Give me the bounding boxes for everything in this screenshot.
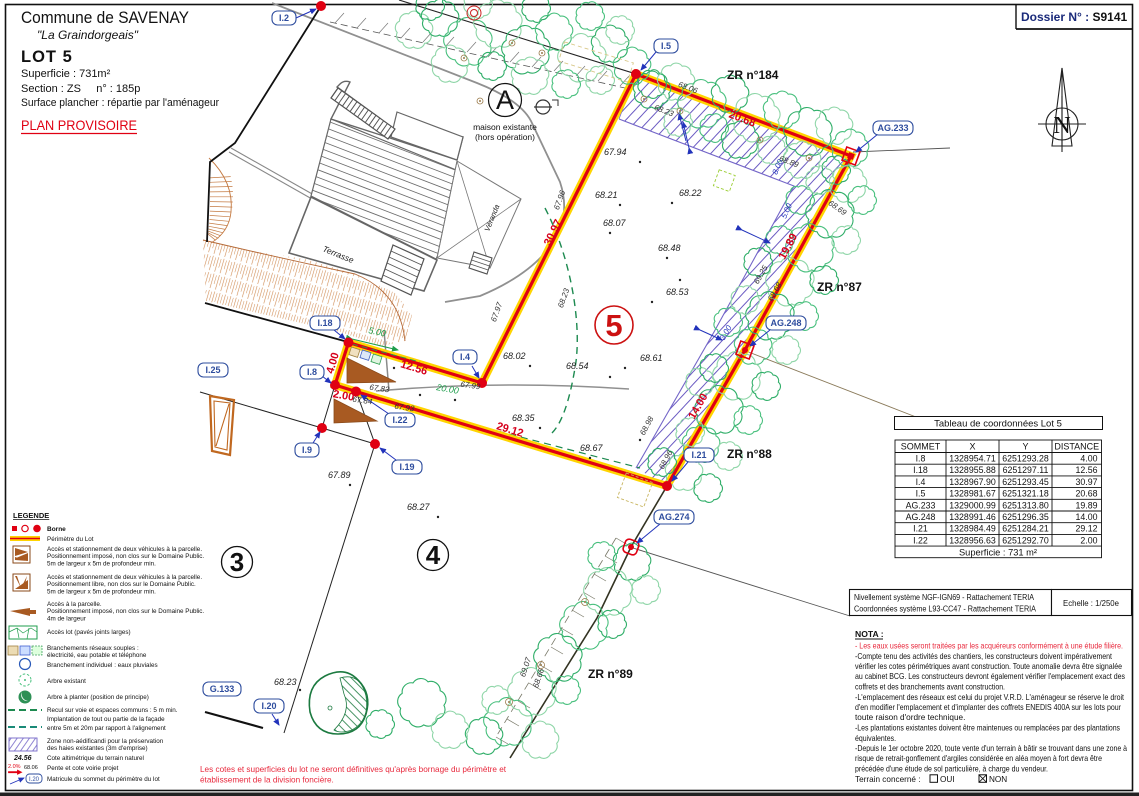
svg-text:6251313.80: 6251313.80 bbox=[1002, 500, 1049, 510]
svg-text:-Les plantations existantes do: -Les plantations existantes doivent être… bbox=[855, 724, 1120, 733]
svg-text:6251293.45: 6251293.45 bbox=[1002, 477, 1049, 487]
svg-text:(hors opération): (hors opération) bbox=[475, 132, 535, 142]
svg-text:6251297.11: 6251297.11 bbox=[1003, 465, 1049, 475]
svg-text:Coordonnées système L93-CC47: Coordonnées système L93-CC47 - Rattachem… bbox=[854, 605, 1037, 614]
svg-text:toute raison d'ordre technique: toute raison d'ordre technique. bbox=[855, 713, 965, 722]
svg-text:d'en modifier l'emplacement et: d'en modifier l'emplacement et d'implant… bbox=[855, 703, 1121, 712]
svg-text:Arbre existant: Arbre existant bbox=[47, 678, 86, 685]
svg-text:AG.248: AG.248 bbox=[906, 512, 936, 522]
svg-text:risque de retrait-gonflement d: risque de retrait-gonflement d'argiles c… bbox=[855, 754, 1102, 763]
svg-text:maison existante: maison existante bbox=[473, 122, 537, 132]
svg-text:NON: NON bbox=[989, 775, 1007, 784]
svg-text:N: N bbox=[1053, 113, 1070, 139]
svg-text:68.02: 68.02 bbox=[503, 351, 526, 361]
svg-text:I.25: I.25 bbox=[205, 365, 220, 375]
svg-text:au cabinet BCG. Les constructe: au cabinet BCG. Les constructeurs devron… bbox=[855, 672, 1125, 681]
svg-text:68.21: 68.21 bbox=[595, 190, 618, 200]
svg-text:Y: Y bbox=[1022, 442, 1028, 452]
svg-text:1328967.90: 1328967.90 bbox=[949, 477, 996, 487]
svg-text:coffrets et des branchements a: coffrets et des branchements avant const… bbox=[855, 683, 1005, 692]
svg-text:NOTA :: NOTA : bbox=[855, 629, 884, 639]
svg-text:Matricule du sommet du périmèt: Matricule du sommet du périmètre du lot bbox=[47, 776, 160, 783]
svg-text:1328955.88: 1328955.88 bbox=[949, 465, 996, 475]
svg-text:I.4: I.4 bbox=[460, 352, 470, 362]
svg-text:Branchements réseaux souples :: Branchements réseaux souples : bbox=[47, 645, 139, 652]
svg-text:-Compte tenu des activités des: -Compte tenu des activités des chantiers… bbox=[855, 652, 1113, 661]
svg-text:12.56: 12.56 bbox=[1075, 465, 1097, 475]
svg-text:Pente et cote voirie projet: Pente et cote voirie projet bbox=[47, 765, 119, 772]
svg-text:6251293.28: 6251293.28 bbox=[1002, 454, 1049, 464]
svg-text:6251292.70: 6251292.70 bbox=[1002, 535, 1049, 545]
svg-text:68.27: 68.27 bbox=[407, 502, 431, 512]
svg-text:Surface plancher : répartie pa: Surface plancher : répartie par l'aménag… bbox=[21, 97, 219, 109]
svg-text:AG.233: AG.233 bbox=[906, 500, 936, 510]
svg-text:68.61: 68.61 bbox=[640, 353, 663, 363]
svg-text:DISTANCE: DISTANCE bbox=[1054, 442, 1099, 452]
svg-text:4m de largeur: 4m de largeur bbox=[47, 615, 86, 622]
svg-text:1329000.99: 1329000.99 bbox=[949, 500, 996, 510]
svg-text:Commune de SAVENAY: Commune de SAVENAY bbox=[21, 8, 189, 27]
svg-text:AG.274: AG.274 bbox=[658, 512, 689, 522]
svg-text:I.18: I.18 bbox=[317, 318, 332, 328]
svg-text:68.67: 68.67 bbox=[580, 443, 604, 453]
svg-text:Tableau de coordonnées Lot 5: Tableau de coordonnées Lot 5 bbox=[934, 419, 1062, 430]
svg-text:Positionnement imposé, non clo: Positionnement imposé, non clos sur le D… bbox=[47, 608, 204, 615]
svg-text:68.23: 68.23 bbox=[274, 677, 297, 687]
svg-text:Nivellement système NGF-IGN69: Nivellement système NGF-IGN69 - Rattache… bbox=[854, 593, 1035, 602]
svg-text:6251321.18: 6251321.18 bbox=[1002, 489, 1049, 499]
svg-text:entre 5m et 20m par rapport à: entre 5m et 20m par rapport à l'aligneme… bbox=[47, 725, 166, 732]
svg-text:68.07: 68.07 bbox=[603, 218, 627, 228]
svg-text:Branchement individuel : eaux: Branchement individuel : eaux pluviales bbox=[47, 662, 158, 669]
svg-text:I.4: I.4 bbox=[916, 477, 926, 487]
svg-text:ZR n°89: ZR n°89 bbox=[588, 667, 633, 681]
svg-text:AG.248: AG.248 bbox=[770, 318, 801, 328]
svg-text:ZR n°184: ZR n°184 bbox=[727, 68, 779, 82]
svg-text:Dossier N° : S9141: Dossier N° : S9141 bbox=[1021, 10, 1128, 24]
svg-text:I.8: I.8 bbox=[307, 367, 317, 377]
svg-text:2.0%: 2.0% bbox=[8, 764, 21, 770]
svg-text:A: A bbox=[496, 85, 514, 115]
svg-text:G.133: G.133 bbox=[210, 684, 235, 694]
svg-text:I.21: I.21 bbox=[691, 450, 706, 460]
svg-text:PLAN PROVISOIRE: PLAN PROVISOIRE bbox=[21, 117, 137, 133]
svg-text:I.22: I.22 bbox=[392, 415, 407, 425]
svg-text:Zone non-aédificandi pour la p: Zone non-aédificandi pour la préservatio… bbox=[47, 738, 164, 745]
svg-text:vérifier les cotes périmétriqu: vérifier les cotes périmétriques avant c… bbox=[855, 662, 1122, 671]
svg-text:30.97: 30.97 bbox=[1075, 477, 1097, 487]
svg-text:I.8: I.8 bbox=[916, 454, 926, 464]
svg-text:68.35: 68.35 bbox=[512, 413, 536, 423]
svg-text:I.5: I.5 bbox=[661, 41, 671, 51]
svg-text:Cote altimétrique du terrain n: Cote altimétrique du terrain naturel bbox=[47, 755, 144, 762]
svg-text:5m de largeur x 5m de profonde: 5m de largeur x 5m de profondeur min. bbox=[47, 588, 156, 595]
svg-text:I.20: I.20 bbox=[29, 777, 40, 783]
svg-text:Positionnement imposé, non clo: Positionnement imposé, non clos sur le D… bbox=[47, 553, 204, 560]
svg-text:équivalentes.: équivalentes. bbox=[855, 734, 896, 743]
svg-text:I.22: I.22 bbox=[913, 535, 928, 545]
svg-text:1328991.46: 1328991.46 bbox=[949, 512, 996, 522]
svg-text:ZR n°88: ZR n°88 bbox=[727, 447, 772, 461]
svg-text:I.18: I.18 bbox=[913, 465, 928, 475]
svg-text:6251284.21: 6251284.21 bbox=[1002, 524, 1049, 534]
svg-text:Les cotes et superficies du lo: Les cotes et superficies du lot ne seron… bbox=[200, 765, 507, 774]
svg-text:- Les eaux usées seront traité: - Les eaux usées seront traitées par les… bbox=[855, 642, 1123, 651]
svg-text:14.00: 14.00 bbox=[1075, 512, 1097, 522]
svg-text:Terrain concerné :: Terrain concerné : bbox=[855, 775, 921, 784]
svg-text:3: 3 bbox=[230, 547, 244, 577]
svg-text:2.00: 2.00 bbox=[1080, 535, 1097, 545]
svg-text:6251296.35: 6251296.35 bbox=[1002, 512, 1049, 522]
svg-text:Superficie : 731 m²: Superficie : 731 m² bbox=[959, 547, 1037, 557]
svg-text:I.19: I.19 bbox=[399, 462, 414, 472]
svg-text:1328984.49: 1328984.49 bbox=[949, 524, 996, 534]
svg-text:Périmètre du Lot: Périmètre du Lot bbox=[47, 536, 94, 543]
svg-text:ZR n°87: ZR n°87 bbox=[817, 280, 862, 294]
svg-text:Borne: Borne bbox=[47, 526, 66, 533]
svg-text:OUI: OUI bbox=[940, 775, 955, 784]
svg-text:1328956.63: 1328956.63 bbox=[949, 535, 996, 545]
svg-text:68.22: 68.22 bbox=[679, 188, 702, 198]
svg-text:19.89: 19.89 bbox=[1075, 500, 1097, 510]
svg-text:-Depuis le 1er octobre 2020, t: -Depuis le 1er octobre 2020, toute vente… bbox=[855, 744, 1127, 753]
svg-text:I.9: I.9 bbox=[302, 445, 312, 455]
svg-text:5m de largeur x 5m de profonde: 5m de largeur x 5m de profondeur min. bbox=[47, 560, 156, 567]
svg-text:précédée d'une étude de sol pa: précédée d'une étude de sol particulière… bbox=[855, 765, 1048, 774]
svg-text:établissement de la division f: établissement de la division foncière. bbox=[200, 776, 334, 785]
svg-text:68.53: 68.53 bbox=[666, 287, 689, 297]
svg-text:20.68: 20.68 bbox=[1075, 489, 1097, 499]
svg-text:68.48: 68.48 bbox=[658, 243, 681, 253]
svg-text:Section : ZS n° : 185p: Section : ZS n° : 185p bbox=[21, 83, 140, 95]
svg-text:LOT 5: LOT 5 bbox=[21, 48, 73, 66]
svg-text:68.06: 68.06 bbox=[24, 765, 38, 771]
svg-text:68.54: 68.54 bbox=[566, 361, 589, 371]
svg-text:I.2: I.2 bbox=[279, 13, 289, 23]
svg-text:67.94: 67.94 bbox=[604, 147, 627, 157]
svg-text:Superficie : 731m²: Superficie : 731m² bbox=[21, 68, 111, 80]
svg-text:Echelle : 1/250e: Echelle : 1/250e bbox=[1063, 599, 1119, 608]
svg-text:I.5: I.5 bbox=[916, 489, 926, 499]
svg-text:Accès à la parcelle.: Accès à la parcelle. bbox=[47, 601, 102, 608]
svg-text:1328954.71: 1328954.71 bbox=[949, 454, 996, 464]
svg-text:29.12: 29.12 bbox=[1075, 524, 1097, 534]
svg-text:des haies existantes (3m d'emp: des haies existantes (3m d'emprise) bbox=[47, 745, 148, 752]
svg-text:électricité, eau potable et té: électricité, eau potable et téléphone bbox=[47, 652, 147, 659]
svg-text:Recul sur voie et espaces comm: Recul sur voie et espaces communs : 5 m … bbox=[47, 707, 178, 714]
svg-text:24.56: 24.56 bbox=[13, 755, 32, 762]
svg-text:Accès lot (pavés joints larges: Accès lot (pavés joints larges) bbox=[47, 629, 131, 636]
svg-text:4.00: 4.00 bbox=[1080, 454, 1097, 464]
svg-text:Arbre à planter (position de p: Arbre à planter (position de principe) bbox=[47, 694, 149, 701]
svg-text:4: 4 bbox=[426, 540, 441, 570]
svg-text:AG.233: AG.233 bbox=[877, 123, 908, 133]
svg-text:I.21: I.21 bbox=[913, 524, 928, 534]
svg-text:"La Graindorgeais": "La Graindorgeais" bbox=[37, 28, 139, 42]
svg-text:X: X bbox=[969, 442, 975, 452]
svg-text:67.89: 67.89 bbox=[328, 470, 351, 480]
svg-text:Accès et stationnement de deux: Accès et stationnement de deux véhicules… bbox=[47, 574, 202, 581]
svg-text:-L'emplacement des réseaux est: -L'emplacement des réseaux est celui du … bbox=[855, 693, 1125, 702]
svg-text:Implantation de tout ou partie: Implantation de tout ou partie de la faç… bbox=[47, 716, 165, 723]
svg-text:Accès et stationnement de deux: Accès et stationnement de deux véhicules… bbox=[47, 546, 202, 553]
svg-text:5: 5 bbox=[605, 308, 622, 343]
svg-text:Positionnement libre, non clos: Positionnement libre, non clos sur le Do… bbox=[47, 581, 196, 588]
svg-text:SOMMET: SOMMET bbox=[901, 442, 941, 452]
svg-text:LEGENDE: LEGENDE bbox=[13, 511, 49, 520]
svg-text:1328981.67: 1328981.67 bbox=[949, 489, 996, 499]
svg-text:I.20: I.20 bbox=[261, 701, 276, 711]
